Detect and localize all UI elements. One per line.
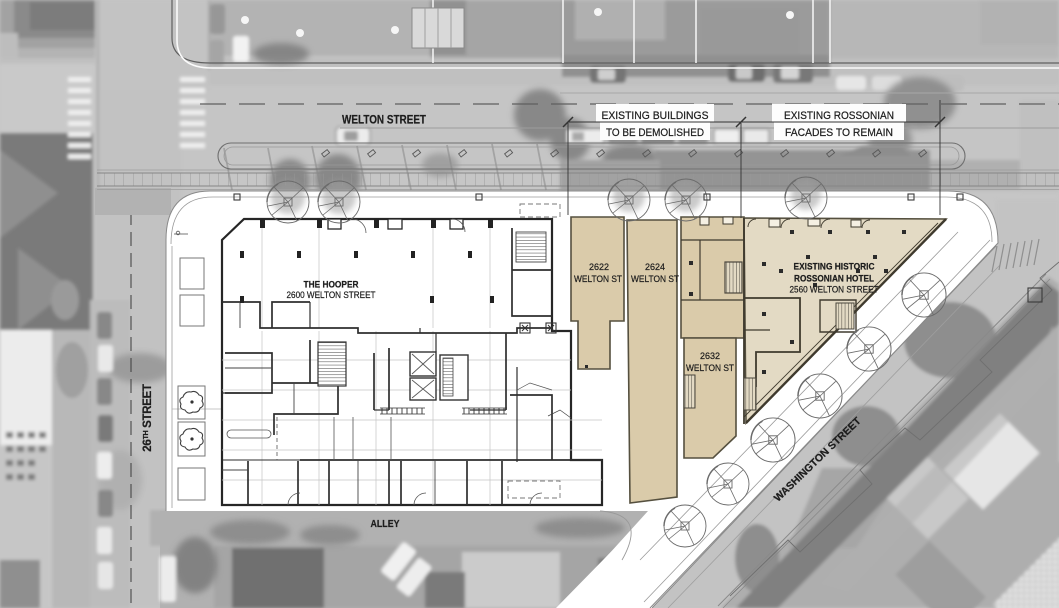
svg-text:WELTON ST: WELTON ST <box>686 363 734 373</box>
svg-text:ROSSONIAN HOTEL: ROSSONIAN HOTEL <box>794 274 874 284</box>
svg-text:2632: 2632 <box>700 351 720 361</box>
svg-text:FACADES TO REMAIN: FACADES TO REMAIN <box>785 127 893 139</box>
svg-text:WELTON ST: WELTON ST <box>574 274 622 284</box>
svg-text:THE HOOPER: THE HOOPER <box>304 280 359 291</box>
svg-text:2560 WELTON STREET: 2560 WELTON STREET <box>790 285 879 295</box>
svg-text:ALLEY: ALLEY <box>371 519 400 530</box>
svg-text:TO BE DEMOLISHED: TO BE DEMOLISHED <box>606 127 704 139</box>
svg-text:2622: 2622 <box>589 262 609 272</box>
svg-text:WELTON STREET: WELTON STREET <box>342 115 426 127</box>
svg-text:WELTON ST: WELTON ST <box>631 274 679 284</box>
svg-text:2624: 2624 <box>645 262 665 272</box>
svg-text:EXISTING HISTORIC: EXISTING HISTORIC <box>794 262 875 272</box>
svg-text:EXISTING BUILDINGS: EXISTING BUILDINGS <box>602 110 709 122</box>
svg-text:EXISTING ROSSONIAN: EXISTING ROSSONIAN <box>784 110 894 122</box>
svg-text:2600 WELTON STREET: 2600 WELTON STREET <box>287 290 376 301</box>
svg-text:26TH STREET: 26TH STREET <box>142 384 154 452</box>
